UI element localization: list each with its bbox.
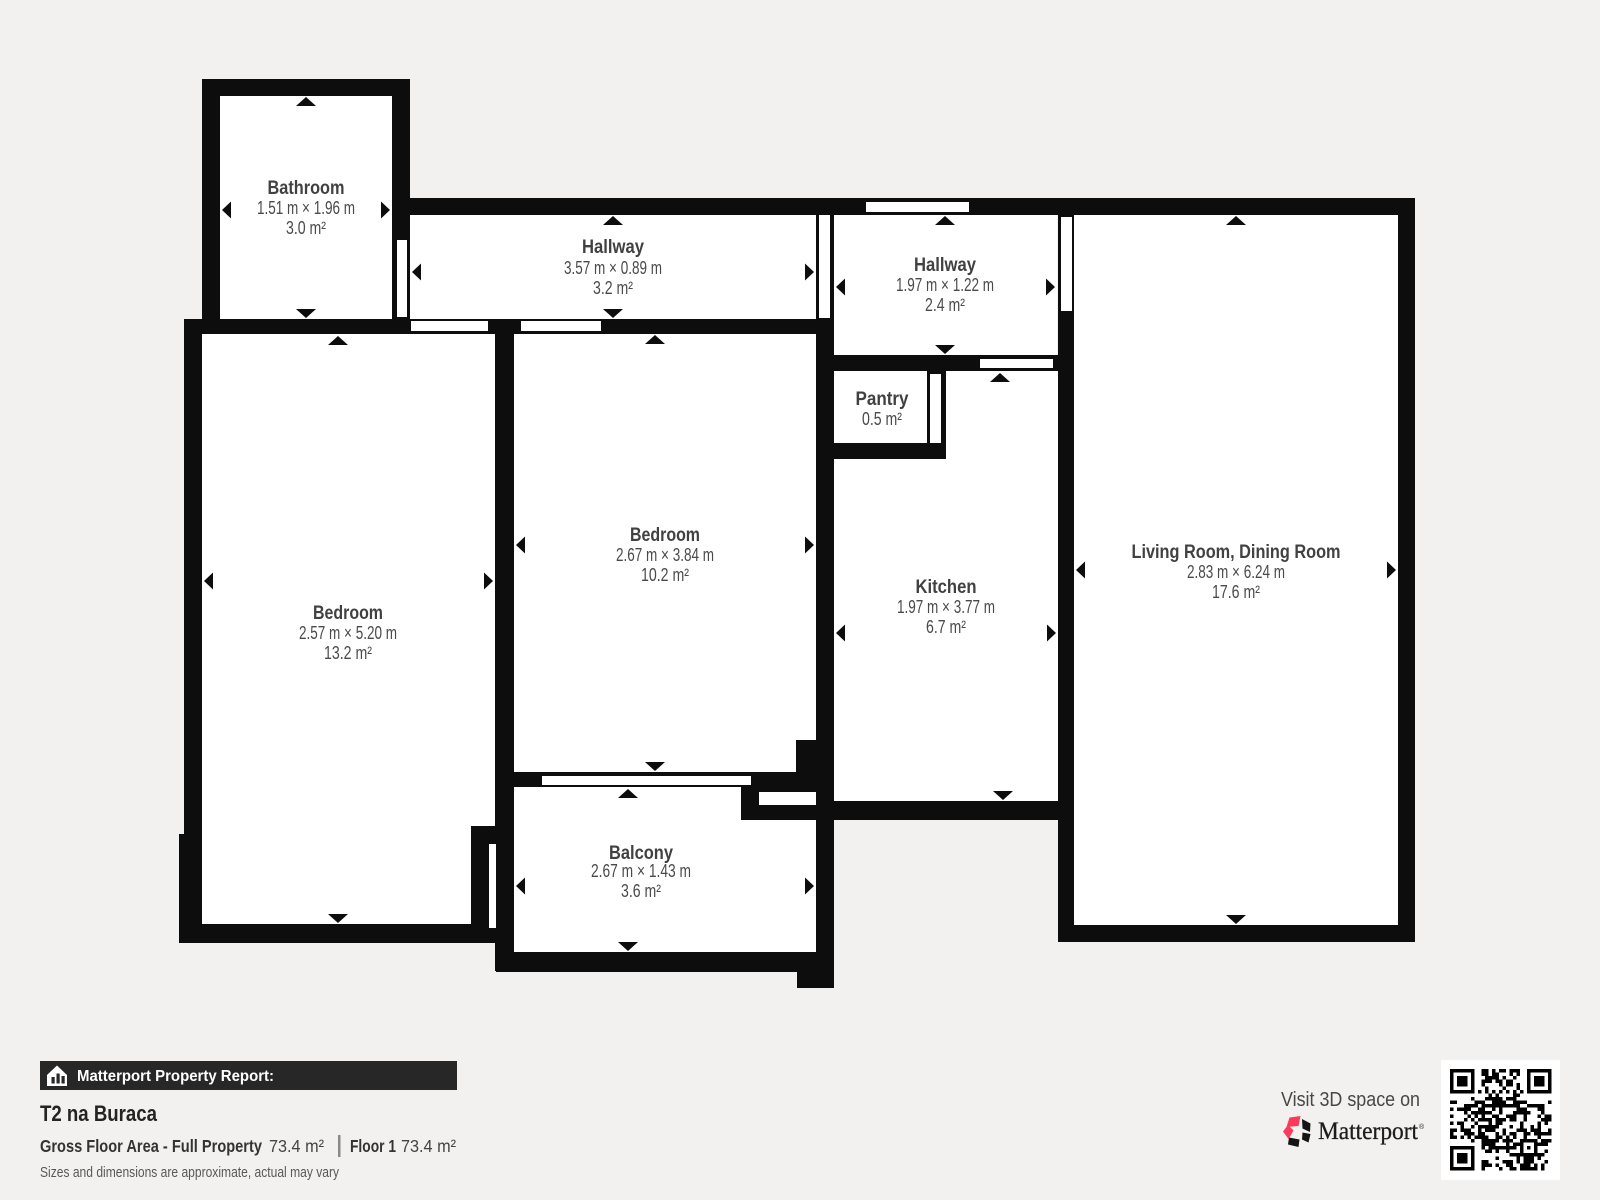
svg-text:3.6 m²: 3.6 m² — [621, 881, 661, 901]
svg-text:Sizes and dimensions are appro: Sizes and dimensions are approximate, ac… — [40, 1164, 339, 1181]
svg-text:1.51 m × 1.96 m: 1.51 m × 1.96 m — [257, 198, 355, 218]
svg-text:®: ® — [1419, 1123, 1425, 1131]
svg-text:Hallway: Hallway — [582, 237, 644, 258]
svg-text:Matterport Property Report:: Matterport Property Report: — [77, 1068, 274, 1085]
svg-text:Living Room, Dining Room: Living Room, Dining Room — [1132, 542, 1341, 563]
svg-text:2.4 m²: 2.4 m² — [925, 295, 965, 315]
svg-text:Pantry: Pantry — [856, 389, 909, 410]
svg-text:2.83 m × 6.24 m: 2.83 m × 6.24 m — [1187, 562, 1285, 582]
svg-text:Visit 3D space on: Visit 3D space on — [1281, 1088, 1420, 1111]
svg-text:1.97 m × 1.22 m: 1.97 m × 1.22 m — [896, 275, 994, 295]
svg-text:T2 na Buraca: T2 na Buraca — [40, 1101, 158, 1126]
svg-text:Matterport: Matterport — [1318, 1118, 1418, 1145]
svg-text:73.4 m²: 73.4 m² — [269, 1136, 324, 1156]
svg-text:3.57 m × 0.89 m: 3.57 m × 0.89 m — [564, 258, 662, 278]
svg-text:2.67 m × 3.84 m: 2.67 m × 3.84 m — [616, 545, 714, 565]
svg-text:73.4 m²: 73.4 m² — [401, 1136, 456, 1156]
svg-text:Hallway: Hallway — [914, 255, 976, 276]
svg-text:Bathroom: Bathroom — [268, 178, 345, 199]
svg-text:Bedroom: Bedroom — [630, 525, 700, 546]
svg-text:Kitchen: Kitchen — [916, 577, 977, 598]
svg-text:2.67 m × 1.43 m: 2.67 m × 1.43 m — [591, 861, 691, 881]
svg-text:10.2 m²: 10.2 m² — [641, 565, 689, 585]
svg-text:3.0 m²: 3.0 m² — [286, 218, 326, 238]
svg-text:13.2 m²: 13.2 m² — [324, 643, 372, 663]
svg-text:17.6 m²: 17.6 m² — [1212, 582, 1260, 602]
svg-text:Bedroom: Bedroom — [313, 603, 383, 624]
svg-text:1.97 m × 3.77 m: 1.97 m × 3.77 m — [897, 597, 995, 617]
svg-text:6.7 m²: 6.7 m² — [926, 617, 966, 637]
svg-text:Gross Floor Area - Full Proper: Gross Floor Area - Full Property — [40, 1136, 262, 1156]
svg-text:2.57 m × 5.20 m: 2.57 m × 5.20 m — [299, 623, 397, 643]
svg-text:0.5 m²: 0.5 m² — [862, 409, 902, 429]
svg-text:3.2 m²: 3.2 m² — [593, 278, 633, 298]
svg-text:Floor 1: Floor 1 — [350, 1136, 396, 1156]
